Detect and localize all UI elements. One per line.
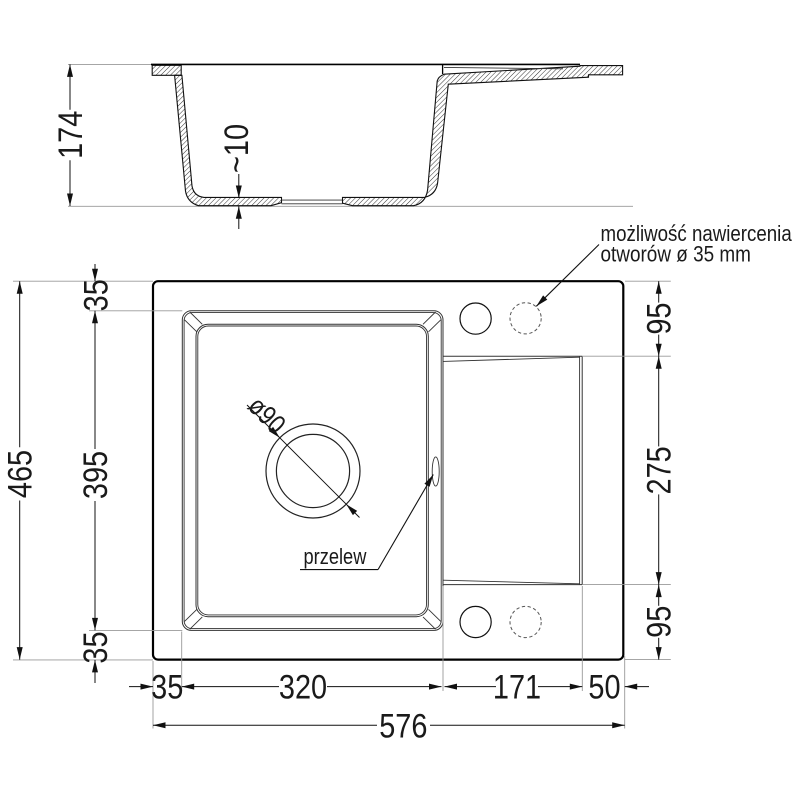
svg-text:przelew: przelew [304, 546, 367, 570]
svg-text:50: 50 [588, 667, 620, 706]
svg-text:35: 35 [151, 667, 183, 706]
svg-text:465: 465 [0, 450, 39, 498]
svg-text:95: 95 [639, 606, 678, 638]
svg-text:35: 35 [76, 279, 115, 311]
svg-text:174: 174 [51, 111, 90, 159]
svg-text:171: 171 [493, 667, 541, 706]
svg-text:576: 576 [379, 706, 427, 745]
svg-text:35: 35 [76, 631, 115, 663]
svg-text:395: 395 [76, 451, 115, 499]
svg-text:320: 320 [279, 667, 327, 706]
svg-text:95: 95 [639, 303, 678, 335]
svg-text:275: 275 [639, 446, 678, 494]
svg-text:otworów ø 35 mm: otworów ø 35 mm [601, 243, 751, 267]
svg-text:~10: ~10 [217, 124, 256, 173]
